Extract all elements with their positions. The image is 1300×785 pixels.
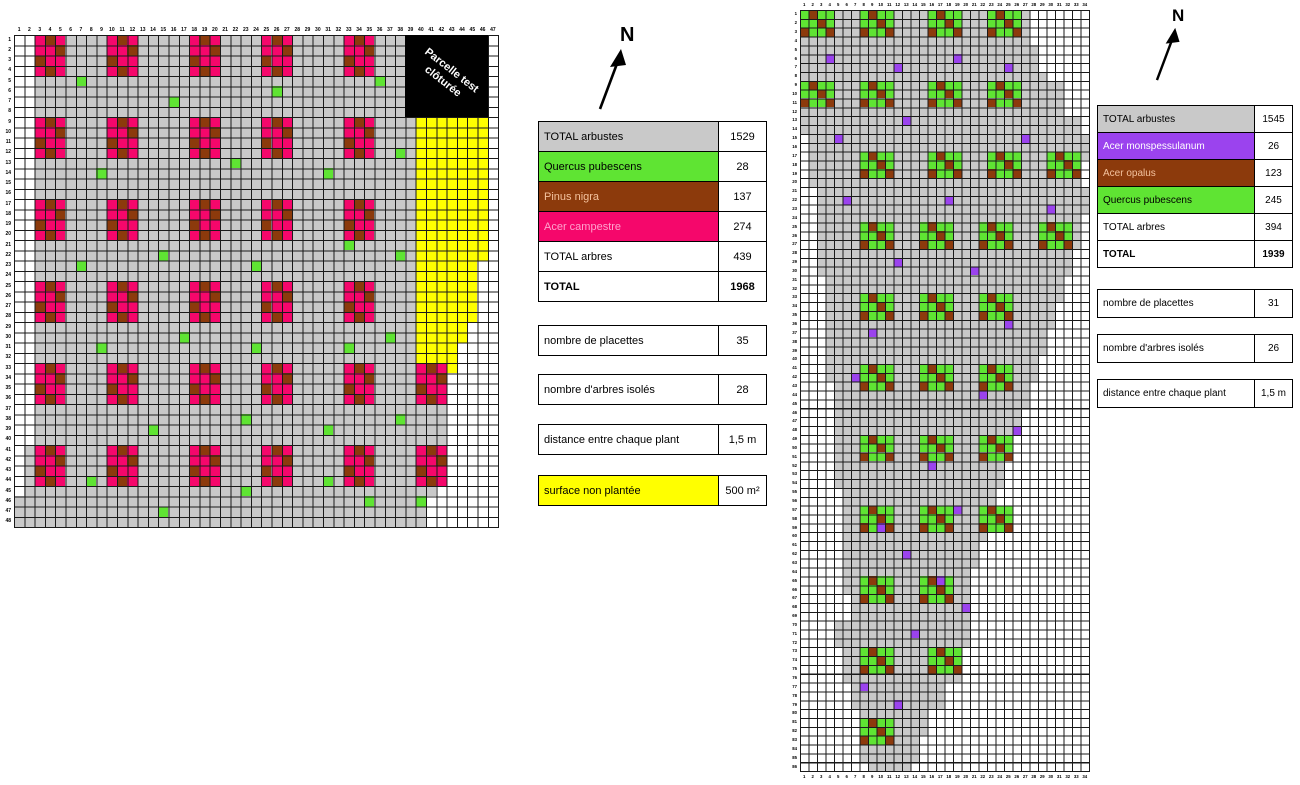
placette-cell	[117, 138, 127, 148]
placette-cell	[107, 148, 117, 158]
placette-cell	[868, 152, 877, 161]
placette-cell	[55, 445, 65, 455]
col-label: 14	[148, 27, 158, 34]
row-label: 2	[2, 45, 12, 55]
isolated-tree-cell	[148, 425, 158, 435]
placette-cell	[282, 230, 292, 240]
isolated-tree-cell	[953, 54, 962, 63]
isolated-tree-cell	[158, 507, 168, 517]
placette-cell	[45, 138, 55, 148]
placette-cell	[107, 138, 117, 148]
placette-cell	[35, 445, 45, 455]
placette-cell	[261, 455, 271, 465]
placette-cell	[436, 476, 446, 486]
col-label: 26	[1013, 773, 1022, 781]
placette-cell	[945, 576, 954, 585]
placette-cell	[919, 444, 928, 453]
legend-row: Acer monspessulanum26	[1097, 132, 1293, 160]
col-label: 21	[220, 27, 230, 34]
placette-cell	[416, 455, 426, 465]
placette-cell	[354, 209, 364, 219]
placette-cell	[261, 312, 271, 322]
placette-cell	[261, 466, 271, 476]
placette-cell	[117, 230, 127, 240]
unplanted-zone	[416, 117, 488, 261]
row-label: 61	[786, 541, 798, 550]
placette-cell	[987, 382, 996, 391]
placette-cell	[426, 476, 436, 486]
placette-cell	[35, 312, 45, 322]
placette-cell	[928, 514, 937, 523]
legend-species-label: Acer campestre	[539, 212, 719, 241]
placette-cell	[282, 220, 292, 230]
placette-cell	[987, 523, 996, 532]
placette-cell	[107, 117, 117, 127]
placette-cell	[354, 220, 364, 230]
placette-cell	[860, 28, 869, 37]
placette-cell	[945, 160, 954, 169]
placette-cell	[354, 466, 364, 476]
placette-cell	[45, 363, 55, 373]
placette-cell	[210, 138, 220, 148]
placette-cell	[210, 384, 220, 394]
placette-cell	[953, 81, 962, 90]
placette-cell	[272, 455, 282, 465]
row-label: 32	[786, 284, 798, 293]
placette-cell	[868, 453, 877, 462]
col-label: 13	[902, 1, 911, 9]
placette-cell	[868, 444, 877, 453]
placette-cell	[885, 435, 894, 444]
col-label: 32	[1064, 1, 1073, 9]
placette-cell	[354, 394, 364, 404]
placette-cell	[45, 445, 55, 455]
placette-cell	[979, 240, 988, 249]
legend-species-label: TOTAL arbres	[539, 242, 719, 271]
placette-cell	[117, 466, 127, 476]
placette-cell	[877, 382, 886, 391]
row-label: 35	[2, 384, 12, 394]
placette-cell	[996, 302, 1005, 311]
isolated-tree-cell	[851, 373, 860, 382]
placette-cell	[945, 523, 954, 532]
placette-cell	[282, 117, 292, 127]
placette-cell	[945, 240, 954, 249]
info-value: 1,5 m	[1255, 380, 1292, 407]
placette-cell	[127, 220, 137, 230]
placette-cell	[868, 576, 877, 585]
placette-cell	[868, 736, 877, 745]
placette-cell	[189, 220, 199, 230]
legend-species-label: TOTAL arbustes	[539, 122, 719, 151]
col-label: 13	[902, 773, 911, 781]
col-label: 4	[45, 27, 55, 34]
placette-cell	[885, 665, 894, 674]
placette-cell	[979, 453, 988, 462]
placette-cell	[868, 293, 877, 302]
placette-cell	[272, 199, 282, 209]
placette-cell	[860, 81, 869, 90]
placette-cell	[199, 148, 209, 158]
placette-cell	[885, 506, 894, 515]
placette-cell	[945, 585, 954, 594]
isolated-tree-cell	[96, 168, 106, 178]
col-label: 7	[851, 773, 860, 781]
col-label: 44	[457, 27, 467, 34]
placette-cell	[928, 373, 937, 382]
row-label: 31	[2, 343, 12, 353]
placette-cell	[35, 56, 45, 66]
isolated-tree-cell	[868, 329, 877, 338]
info-label: surface non plantée	[539, 476, 719, 505]
placette-cell	[55, 363, 65, 373]
placette-cell	[107, 363, 117, 373]
placette-cell	[953, 28, 962, 37]
col-label: 1	[800, 1, 809, 9]
placette-cell	[1004, 302, 1013, 311]
placette-cell	[987, 293, 996, 302]
placette-cell	[1047, 152, 1056, 161]
placette-cell	[1072, 160, 1081, 169]
placette-cell	[928, 523, 937, 532]
placette-cell	[953, 665, 962, 674]
placette-cell	[261, 363, 271, 373]
placette-cell	[928, 444, 937, 453]
placette-cell	[272, 45, 282, 55]
placette-cell	[261, 220, 271, 230]
placette-cell	[860, 514, 869, 523]
placette-cell	[55, 466, 65, 476]
placette-cell	[189, 56, 199, 66]
col-label: 4	[826, 773, 835, 781]
row-label: 24	[2, 271, 12, 281]
placette-cell	[919, 240, 928, 249]
col-label: 7	[851, 1, 860, 9]
placette-cell	[55, 455, 65, 465]
placette-cell	[868, 594, 877, 603]
col-label: 27	[282, 27, 292, 34]
col-label: 25	[1004, 1, 1013, 9]
placette-cell	[945, 293, 954, 302]
placette-cell	[210, 199, 220, 209]
placette-cell	[885, 19, 894, 28]
placette-cell	[936, 514, 945, 523]
placette-cell	[868, 81, 877, 90]
placette-cell	[354, 138, 364, 148]
placette-cell	[107, 66, 117, 76]
placette-cell	[354, 455, 364, 465]
placette-cell	[1013, 152, 1022, 161]
placette-cell	[936, 160, 945, 169]
placette-cell	[127, 117, 137, 127]
row-label: 41	[2, 445, 12, 455]
placette-cell	[860, 160, 869, 169]
placette-cell	[344, 466, 354, 476]
placette-cell	[868, 523, 877, 532]
placette-cell	[860, 19, 869, 28]
placette-cell	[877, 718, 886, 727]
placette-cell	[344, 138, 354, 148]
planted-zone	[868, 762, 911, 771]
row-label: 50	[786, 444, 798, 453]
placette-cell	[199, 209, 209, 219]
placette-cell	[354, 363, 364, 373]
placette-cell	[199, 117, 209, 127]
legend-row: TOTAL arbres394	[1097, 213, 1293, 241]
placette-cell	[928, 240, 937, 249]
placette-cell	[1013, 81, 1022, 90]
placette-cell	[55, 384, 65, 394]
row-label: 5	[786, 45, 798, 54]
legend-count-value: 1968	[719, 272, 766, 301]
placette-cell	[1004, 444, 1013, 453]
placette-cell	[282, 455, 292, 465]
col-label: 18	[945, 773, 954, 781]
row-label: 57	[786, 506, 798, 515]
placette-cell	[107, 466, 117, 476]
placette-cell	[885, 585, 894, 594]
placette-cell	[1004, 506, 1013, 515]
placette-cell	[936, 81, 945, 90]
placette-cell	[877, 81, 886, 90]
placette-cell	[189, 209, 199, 219]
placette-cell	[436, 466, 446, 476]
isolated-tree-cell	[76, 76, 86, 86]
placette-cell	[877, 160, 886, 169]
row-label: 43	[786, 382, 798, 391]
placette-cell	[199, 199, 209, 209]
placette-cell	[885, 81, 894, 90]
placette-cell	[936, 523, 945, 532]
placette-cell	[987, 28, 996, 37]
col-label: 31	[323, 27, 333, 34]
placette-cell	[936, 585, 945, 594]
placette-cell	[945, 231, 954, 240]
placette-cell	[996, 28, 1005, 37]
placette-cell	[936, 647, 945, 656]
col-label: 47	[488, 27, 498, 34]
placette-cell	[979, 364, 988, 373]
placette-cell	[45, 394, 55, 404]
placette-cell	[35, 302, 45, 312]
col-label: 29	[1038, 1, 1047, 9]
placette-cell	[35, 35, 45, 45]
placette-cell	[1004, 231, 1013, 240]
isolated-tree-cell	[416, 496, 426, 506]
placette-cell	[189, 66, 199, 76]
placette-cell	[979, 382, 988, 391]
isolated-tree-cell	[1047, 205, 1056, 214]
placette-cell	[210, 56, 220, 66]
placette-cell	[1055, 160, 1064, 169]
placette-cell	[344, 209, 354, 219]
row-label: 26	[786, 231, 798, 240]
placette-cell	[877, 90, 886, 99]
row-label: 6	[786, 54, 798, 63]
placette-cell	[809, 90, 818, 99]
placette-cell	[1047, 222, 1056, 231]
placette-cell	[877, 736, 886, 745]
placette-cell	[860, 373, 869, 382]
placette-cell	[979, 506, 988, 515]
row-label: 76	[786, 674, 798, 683]
legend-species-label: TOTAL	[1098, 241, 1255, 267]
placette-cell	[1047, 169, 1056, 178]
row-label: 3	[786, 28, 798, 37]
placette-cell	[885, 311, 894, 320]
col-label: 3	[35, 27, 45, 34]
placette-cell	[35, 476, 45, 486]
placette-cell	[364, 56, 374, 66]
placette-cell	[127, 394, 137, 404]
row-label: 7	[2, 97, 12, 107]
placette-cell	[261, 138, 271, 148]
placette-cell	[945, 514, 954, 523]
col-label: 43	[447, 27, 457, 34]
placette-cell	[199, 291, 209, 301]
placette-cell	[877, 514, 886, 523]
row-label: 27	[2, 302, 12, 312]
placette-cell	[945, 373, 954, 382]
placette-cell	[354, 445, 364, 455]
placette-cell	[344, 394, 354, 404]
info-label: nombre de placettes	[1098, 290, 1255, 317]
row-label: 78	[786, 691, 798, 700]
isolated-tree-cell	[860, 683, 869, 692]
placette-cell	[117, 56, 127, 66]
placette-cell	[416, 445, 426, 455]
row-label: 15	[2, 179, 12, 189]
isolated-tree-cell	[1021, 134, 1030, 143]
placette-cell	[919, 222, 928, 231]
info-table: nombre de placettes31	[1097, 289, 1293, 318]
row-label: 51	[786, 453, 798, 462]
placette-cell	[117, 312, 127, 322]
isolated-tree-cell	[344, 343, 354, 353]
isolated-tree-cell	[843, 196, 852, 205]
placette-cell	[55, 56, 65, 66]
placette-cell	[35, 148, 45, 158]
legend-row: TOTAL1968	[538, 271, 767, 302]
placette-cell	[953, 19, 962, 28]
placette-cell	[945, 99, 954, 108]
placette-cell	[928, 364, 937, 373]
info-label: nombre de placettes	[539, 326, 719, 355]
placette-cell	[936, 656, 945, 665]
placette-cell	[877, 594, 886, 603]
planted-zone	[843, 541, 979, 568]
placette-cell	[426, 394, 436, 404]
placette-cell	[416, 466, 426, 476]
placette-cell	[127, 230, 137, 240]
placette-cell	[210, 209, 220, 219]
placette-cell	[979, 373, 988, 382]
placette-cell	[919, 364, 928, 373]
placette-cell	[919, 506, 928, 515]
placette-cell	[860, 647, 869, 656]
placette-cell	[364, 312, 374, 322]
placette-cell	[919, 523, 928, 532]
placette-cell	[868, 514, 877, 523]
placette-cell	[364, 35, 374, 45]
isolated-tree-cell	[375, 76, 385, 86]
placette-cell	[107, 384, 117, 394]
col-label: 39	[405, 27, 415, 34]
row-label: 21	[2, 240, 12, 250]
placette-cell	[800, 28, 809, 37]
placette-cell	[416, 394, 426, 404]
placette-cell	[117, 302, 127, 312]
placette-cell	[344, 302, 354, 312]
placette-cell	[1013, 169, 1022, 178]
planting-plan-page: 1234567891011121314151617181920212223242…	[0, 0, 1300, 785]
row-label: 18	[786, 160, 798, 169]
placette-cell	[55, 209, 65, 219]
placette-cell	[107, 56, 117, 66]
placette-cell	[261, 209, 271, 219]
placette-cell	[261, 45, 271, 55]
placette-cell	[979, 435, 988, 444]
placette-cell	[877, 302, 886, 311]
placette-cell	[189, 466, 199, 476]
placette-cell	[416, 363, 426, 373]
placette-cell	[860, 240, 869, 249]
placette-cell	[35, 209, 45, 219]
placette-cell	[117, 117, 127, 127]
placette-cell	[936, 293, 945, 302]
isolated-tree-cell	[272, 86, 282, 96]
placette-cell	[885, 364, 894, 373]
placette-cell	[127, 373, 137, 383]
placette-cell	[354, 117, 364, 127]
placette-cell	[364, 127, 374, 137]
isolated-tree-cell	[323, 425, 333, 435]
placette-cell	[868, 647, 877, 656]
placette-cell	[945, 19, 954, 28]
placette-cell	[55, 281, 65, 291]
placette-cell	[979, 444, 988, 453]
placette-cell	[210, 45, 220, 55]
placette-cell	[117, 45, 127, 55]
placette-cell	[809, 99, 818, 108]
grid-area: Parcelle test clôturée	[14, 35, 499, 528]
placette-cell	[868, 727, 877, 736]
isolated-tree-cell	[1013, 426, 1022, 435]
placette-cell	[210, 312, 220, 322]
col-label: 5	[834, 1, 843, 9]
placette-cell	[928, 90, 937, 99]
placette-cell	[416, 384, 426, 394]
placette-cell	[979, 231, 988, 240]
placette-cell	[344, 117, 354, 127]
placette-cell	[189, 384, 199, 394]
placette-cell	[800, 99, 809, 108]
placette-cell	[1055, 240, 1064, 249]
placette-cell	[826, 90, 835, 99]
placette-cell	[117, 455, 127, 465]
placette-cell	[282, 148, 292, 158]
placette-cell	[261, 476, 271, 486]
placette-cell	[272, 209, 282, 219]
col-label: 9	[868, 1, 877, 9]
legend-row: Pinus nigra137	[538, 181, 767, 212]
placette-cell	[1004, 222, 1013, 231]
row-label: 53	[786, 470, 798, 479]
placette-cell	[928, 594, 937, 603]
col-label: 34	[354, 27, 364, 34]
row-label: 58	[786, 514, 798, 523]
placette-cell	[416, 476, 426, 486]
